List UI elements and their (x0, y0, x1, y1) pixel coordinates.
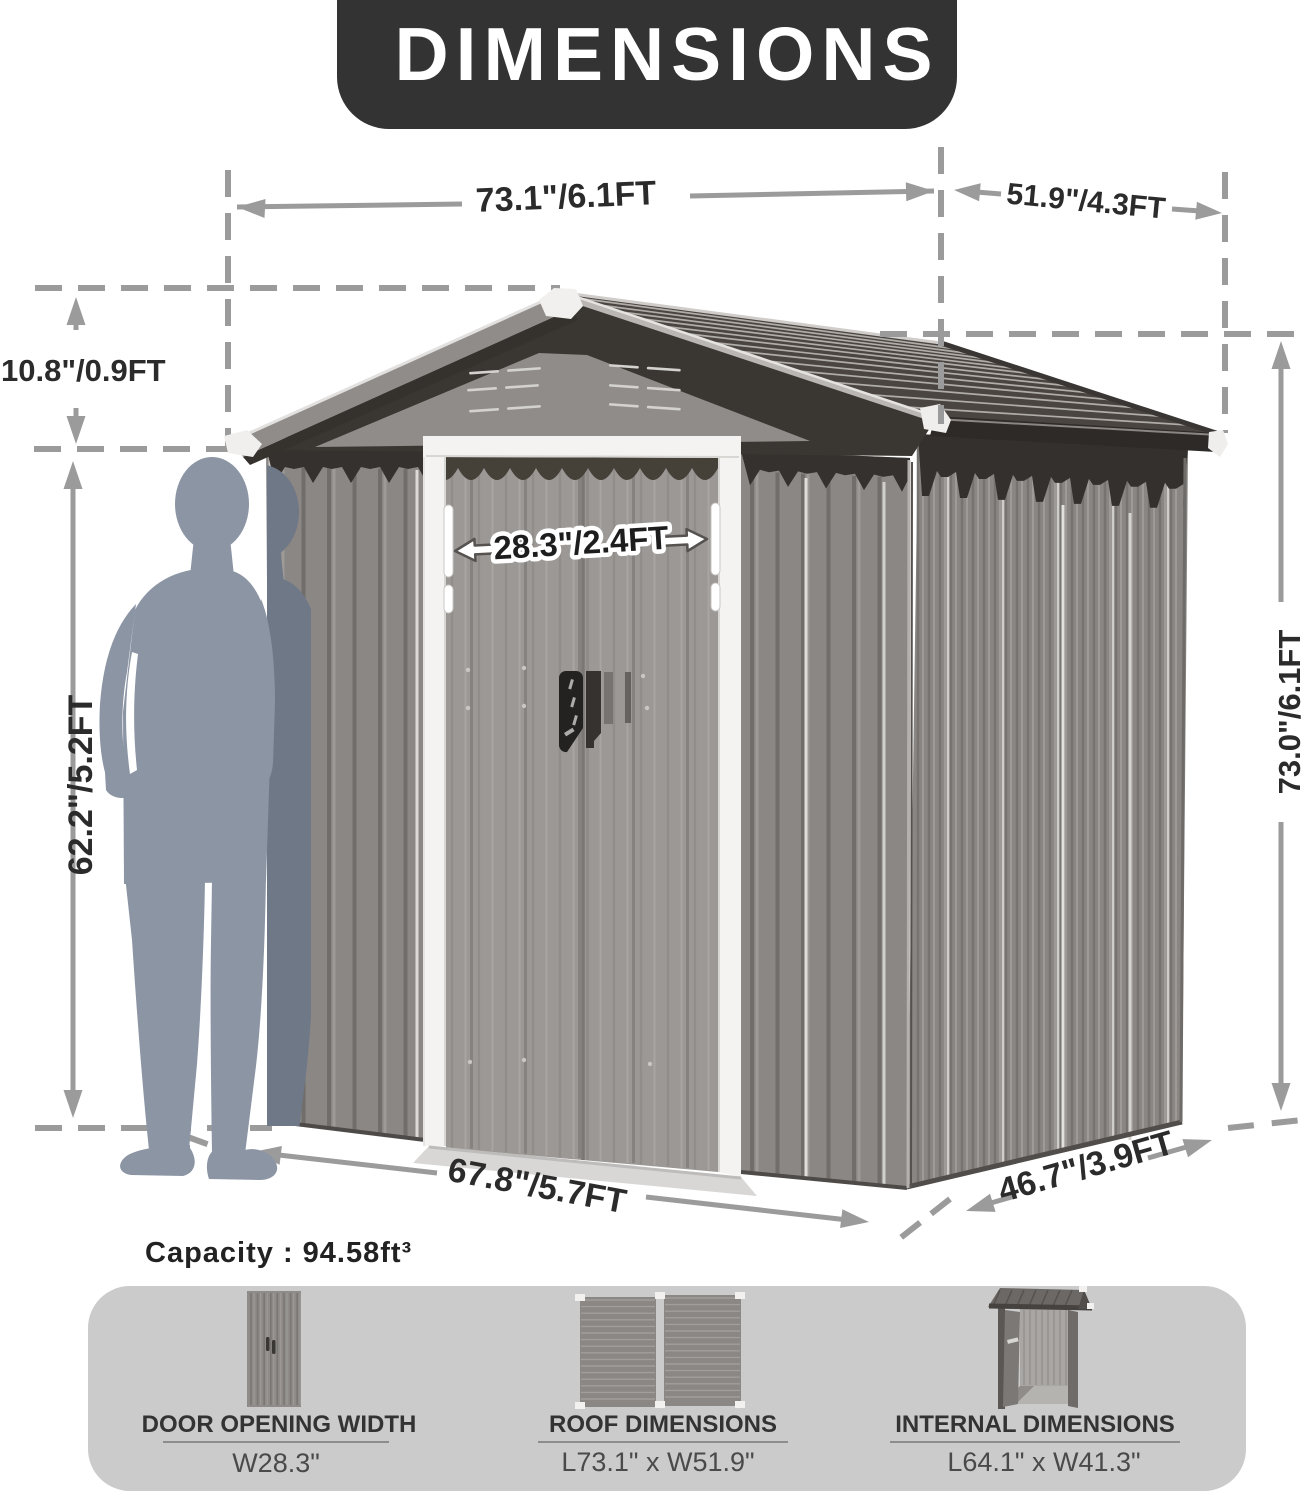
svg-text:L73.1" x W51.9": L73.1" x W51.9" (561, 1447, 754, 1477)
svg-text:Capacity : 94.58ft³: Capacity : 94.58ft³ (145, 1237, 412, 1269)
svg-text:W28.3": W28.3" (232, 1448, 320, 1478)
svg-text:73.1"/6.1FT: 73.1"/6.1FT (475, 174, 657, 220)
svg-text:73.0"/6.1FT: 73.0"/6.1FT (1272, 630, 1304, 795)
svg-text:ROOF DIMENSIONS: ROOF DIMENSIONS (549, 1411, 777, 1438)
svg-text:62.2"/5.2FT: 62.2"/5.2FT (62, 695, 100, 876)
svg-text:DIMENSIONS: DIMENSIONS (394, 12, 939, 96)
svg-text:DOOR OPENING WIDTH: DOOR OPENING WIDTH (142, 1411, 417, 1438)
svg-text:L64.1" x W41.3": L64.1" x W41.3" (947, 1447, 1140, 1477)
svg-text:INTERNAL DIMENSIONS: INTERNAL DIMENSIONS (895, 1411, 1175, 1438)
svg-text:10.8"/0.9FT: 10.8"/0.9FT (1, 353, 166, 388)
